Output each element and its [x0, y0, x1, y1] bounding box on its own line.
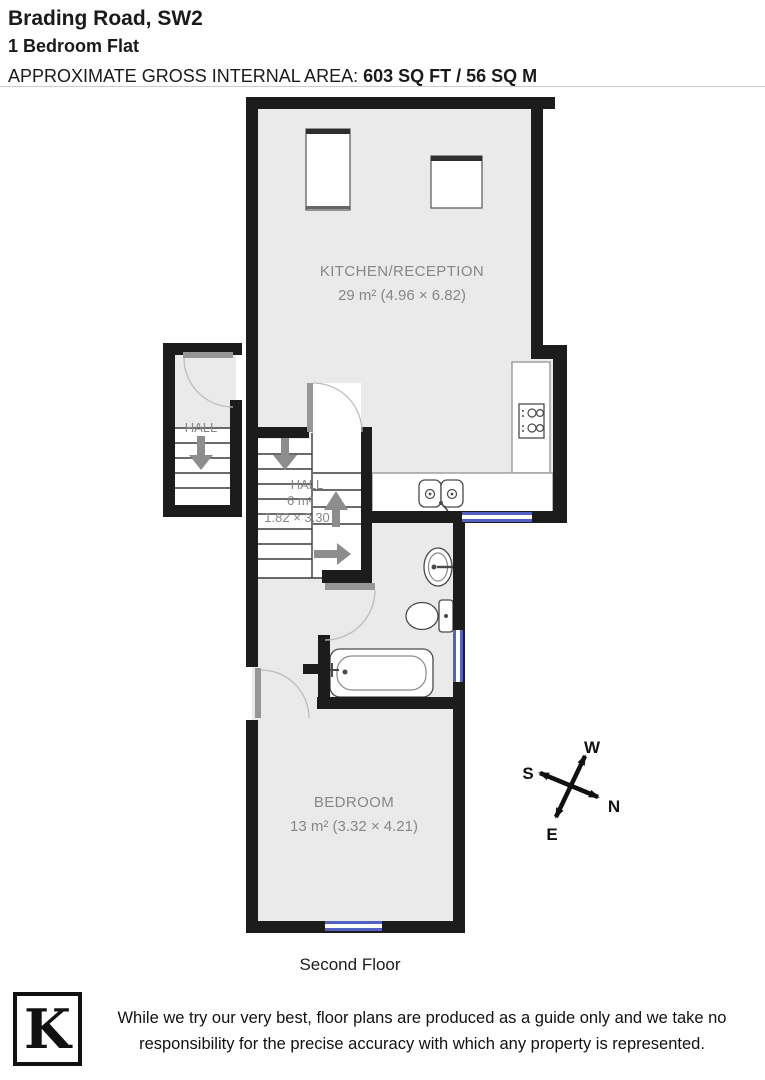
compass: W S N E: [522, 738, 620, 844]
floorplan-page: Brading Road, SW2 1 Bedroom Flat APPROXI…: [0, 0, 765, 1080]
compass-n: N: [608, 797, 620, 816]
kitchen-dims: 29 m² (4.96 × 6.82): [338, 287, 466, 304]
hob-icon: [519, 404, 544, 438]
main-hall-area: 6 m²: [287, 493, 314, 508]
agency-logo: K: [13, 992, 82, 1066]
basin-icon: [424, 548, 453, 586]
compass-e: E: [546, 825, 557, 844]
disclaimer-text: While we try our very best, floor plans …: [88, 1006, 756, 1057]
bathroom-window: [453, 630, 463, 682]
bedroom-window: [325, 921, 382, 931]
main-hall-label: HALL: [291, 477, 324, 492]
floor-plan: KITCHEN/RECEPTION 29 m² (4.96 × 6.82) HA…: [0, 0, 765, 1080]
main-hall-dims: 1.82 × 3.30: [264, 510, 329, 525]
compass-w: W: [584, 738, 601, 757]
kitchen-window: [462, 512, 532, 522]
bathtub-icon: [325, 649, 433, 697]
bedroom-label: BEDROOM: [314, 794, 394, 811]
left-hall-label: HALL: [185, 420, 218, 435]
bedroom-dims: 13 m² (3.32 × 4.21): [290, 818, 418, 835]
toilet-icon: [406, 600, 453, 632]
logo-letter: K: [24, 1002, 71, 1056]
compass-s: S: [522, 764, 533, 783]
floor-name: Second Floor: [0, 955, 700, 975]
kitchen-label: KITCHEN/RECEPTION: [320, 263, 484, 280]
door-swing-area: [313, 383, 361, 439]
